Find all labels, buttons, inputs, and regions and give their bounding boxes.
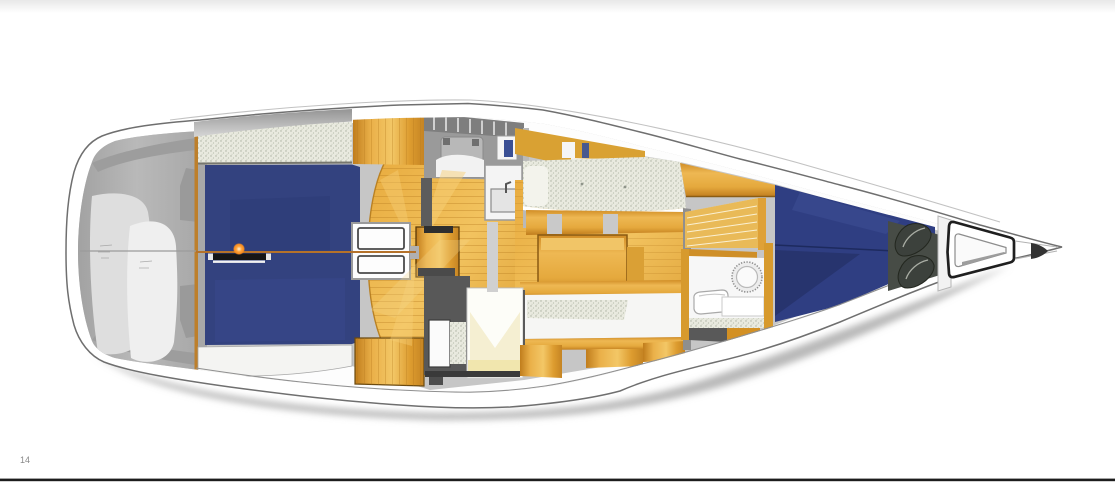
svg-text:14: 14 [20, 455, 30, 465]
